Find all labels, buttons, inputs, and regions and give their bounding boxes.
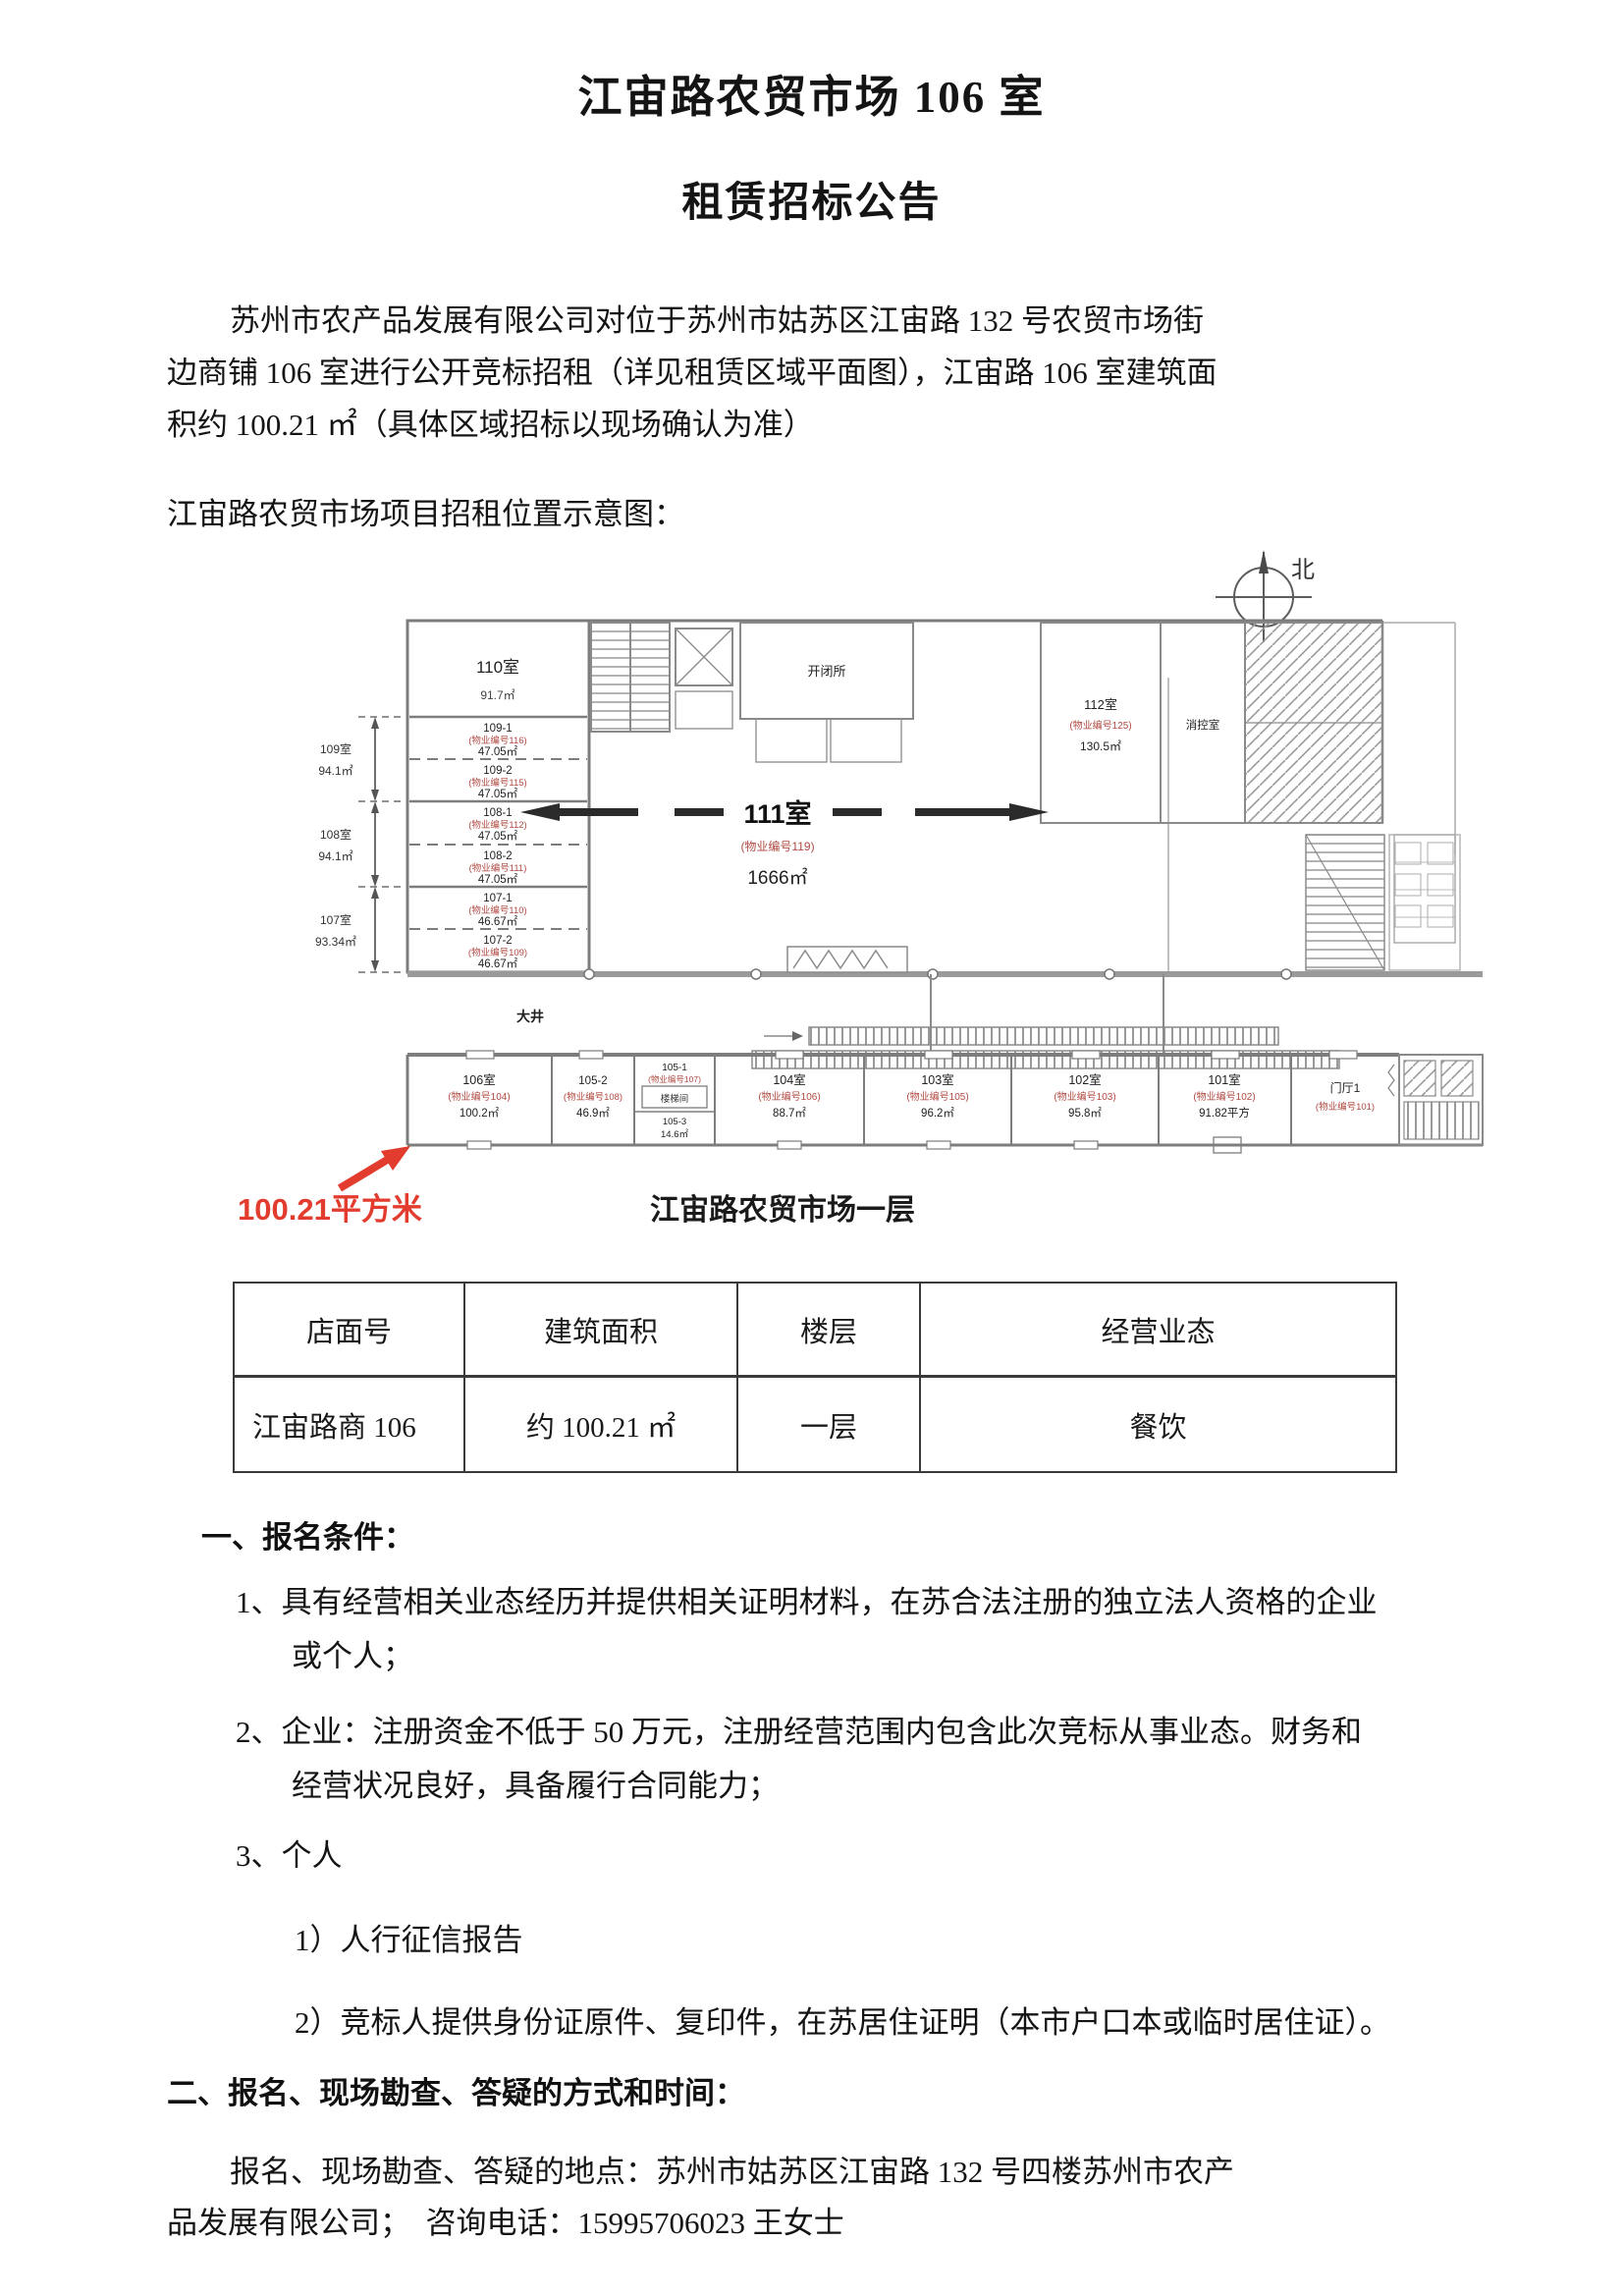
cell-area: 约 100.21 ㎡	[464, 1377, 737, 1473]
para-line: 报名、现场勘查、答疑的地点：苏州市姑苏区江宙路 132 号四楼苏州市农产	[167, 2147, 1473, 2198]
room-code: (物业编号105)	[906, 1090, 968, 1103]
intro-line: 边商铺 106 室进行公开竞标招租（详见租赁区域平面图），江宙路 106 室建筑…	[167, 347, 1473, 399]
room-code: (物业编号106)	[758, 1090, 820, 1103]
room-label: 105-1	[662, 1063, 687, 1073]
room-label: 109-2	[483, 765, 512, 777]
room-label: 103室	[921, 1072, 953, 1087]
item-line: 或个人；	[292, 1629, 1443, 1683]
table-row: 江宙路商 106 约 100.21 ㎡ 一层 餐饮	[234, 1377, 1396, 1473]
document-page: 江宙路农贸市场 106 室 租赁招标公告 苏州市农产品发展有限公司对位于苏州市姑…	[0, 0, 1623, 2296]
room-area: 100.2㎡	[460, 1107, 500, 1120]
room-code: (物业编号110)	[468, 904, 526, 916]
plan-caption: 江宙路农贸市场一层	[650, 1193, 915, 1227]
dim-room: 107室	[320, 912, 352, 927]
room-code: (物业编号107)	[648, 1074, 701, 1084]
cell-business-type: 餐饮	[920, 1377, 1396, 1473]
room-code: (物业编号125)	[1069, 719, 1131, 732]
highlight-arrow-icon	[340, 1146, 410, 1188]
left-dimensions	[358, 717, 406, 972]
room-label: 门厅1	[1330, 1080, 1361, 1095]
left-dimension-labels: 109室 94.1㎡ 108室 94.1㎡ 107室 93.34㎡	[315, 741, 356, 949]
room-code: (物业编号102)	[1193, 1090, 1255, 1103]
dim-area: 94.1㎡	[318, 849, 352, 863]
plan-intro-line: 江宙路农贸市场项目招租位置示意图：	[167, 489, 684, 533]
room-label: 106室	[462, 1072, 495, 1087]
room-area: 46.9㎡	[576, 1107, 610, 1120]
room-label: 108-1	[483, 807, 512, 819]
room-code: (物业编号101)	[1316, 1101, 1375, 1113]
north-label: 北	[1291, 557, 1315, 583]
section1-subitem-1: 1）人行征信报告	[295, 1913, 523, 1967]
cell-floor: 一层	[737, 1377, 920, 1473]
room-area: 130.5㎡	[1080, 739, 1121, 753]
room-code: (物业编号112)	[468, 819, 526, 831]
item-line: 2、企业：注册资金不低于 50 万元，注册经营范围内包含此次竞标从事业态。财务和	[236, 1705, 1443, 1759]
room-label: 105-2	[578, 1075, 607, 1087]
room-label: 109-1	[483, 723, 512, 735]
intro-paragraph: 苏州市农产品发展有限公司对位于苏州市姑苏区江宙路 132 号农贸市场街 边商铺 …	[167, 295, 1473, 451]
section1-subitem-2: 2）竞标人提供身份证原件、复印件，在苏居住证明（本市户口本或临时居住证）。	[295, 1995, 1390, 2050]
room-label: 110室	[476, 658, 519, 677]
room-area: 95.8㎡	[1068, 1107, 1102, 1120]
item-line: 1、具有经营相关业态经历并提供相关证明材料，在苏合法注册的独立法人资格的企业	[236, 1575, 1443, 1629]
room-code: (物业编号108)	[564, 1091, 622, 1103]
section1-item-3: 3、个人	[236, 1829, 343, 1883]
room-area: 47.05㎡	[478, 745, 518, 758]
room-label: 108-2	[483, 850, 512, 862]
item-line: 经营状况良好，具备履行合同能力；	[292, 1759, 1443, 1813]
table-header-row: 店面号 建筑面积 楼层 经营业态	[234, 1283, 1396, 1377]
section2-paragraph: 报名、现场勘查、答疑的地点：苏州市姑苏区江宙路 132 号四楼苏州市农产 品发展…	[167, 2147, 1473, 2249]
room-area: 47.05㎡	[478, 830, 518, 843]
room-code: (物业编号109)	[468, 947, 527, 958]
room-area: 47.05㎡	[478, 788, 518, 800]
section1-item-2: 2、企业：注册资金不低于 50 万元，注册经营范围内包含此次竞标从事业态。财务和…	[236, 1705, 1443, 1813]
room-area: 91.7㎡	[480, 688, 514, 702]
col-header-shop-no: 店面号	[234, 1283, 464, 1377]
dim-room: 108室	[320, 827, 352, 842]
section1-item-1: 1、具有经营相关业态经历并提供相关证明材料，在苏合法注册的独立法人资格的企业 或…	[236, 1575, 1443, 1683]
room-area: 14.6㎡	[661, 1129, 688, 1140]
room-area: 46.67㎡	[478, 957, 518, 970]
hall-111: 111室 (物业编号119) 1666㎡	[520, 798, 1049, 889]
dim-room: 109室	[320, 741, 352, 756]
room-label: 111室	[743, 798, 811, 829]
dim-area: 94.1㎡	[318, 764, 352, 778]
room-label: 104室	[773, 1072, 805, 1087]
shop-info-table: 店面号 建筑面积 楼层 经营业态 江宙路商 106 约 100.21 ㎡ 一层 …	[233, 1282, 1397, 1473]
room-label: 107-2	[483, 935, 512, 947]
room-area: 91.82平方	[1199, 1106, 1250, 1120]
left-wing-labels: 110室 91.7㎡ 109-1 (物业编号116) 47.05㎡ 109-2 …	[468, 658, 527, 970]
room-label: 105-3	[663, 1117, 686, 1127]
floor-plan: 北 110室 91.7㎡ 109-1	[226, 530, 1492, 1230]
room-label: 101室	[1208, 1072, 1240, 1087]
col-header-area: 建筑面积	[464, 1283, 737, 1377]
room-label: 消控室	[1186, 718, 1220, 732]
col-header-floor: 楼层	[737, 1283, 920, 1377]
room-label: 112室	[1084, 697, 1117, 712]
room-label: 开闭所	[807, 664, 845, 679]
highlight-area-label: 100.21平方米	[238, 1192, 422, 1227]
room-code: (物业编号115)	[468, 777, 526, 789]
para-line: 品发展有限公司； 咨询电话：15995706023 王女士	[167, 2198, 1473, 2249]
top-rooms	[591, 623, 1382, 823]
section2-title: 二、报名、现场勘查、答疑的方式和时间：	[167, 2068, 745, 2112]
room-code: (物业编号111)	[469, 862, 527, 874]
room-label: 107-1	[483, 893, 512, 904]
dim-area: 93.34㎡	[315, 935, 356, 949]
intro-line: 苏州市农产品发展有限公司对位于苏州市姑苏区江宙路 132 号农贸市场街	[167, 295, 1473, 347]
cell-shop-no: 江宙路商 106	[234, 1377, 464, 1473]
doc-title-line1: 江宙路农贸市场 106 室	[0, 61, 1623, 125]
room-code: (物业编号103)	[1054, 1090, 1115, 1103]
room-code: (物业编号116)	[468, 735, 526, 746]
courtyard-label: 大井	[516, 1009, 544, 1024]
stair-label: 楼梯间	[661, 1093, 689, 1105]
room-code: (物业编号104)	[448, 1090, 510, 1103]
room-area: 96.2㎡	[921, 1107, 954, 1120]
section1-title: 一、报名条件：	[201, 1512, 414, 1557]
room-code: (物业编号119)	[740, 839, 814, 853]
room-label: 102室	[1068, 1072, 1101, 1087]
intro-line: 积约 100.21 ㎡（具体区域招标以现场确认为准）	[167, 399, 1473, 451]
room-area: 1666㎡	[747, 866, 807, 889]
room-area: 46.67㎡	[478, 915, 518, 928]
doc-title-line2: 租赁招标公告	[0, 169, 1623, 229]
col-header-business-type: 经营业态	[920, 1283, 1396, 1377]
shop-labels: 106室 (物业编号104) 100.2㎡ 105-2 (物业编号108) 46…	[448, 1063, 1375, 1140]
room-area: 88.7㎡	[773, 1107, 806, 1120]
room-area: 47.05㎡	[478, 873, 518, 886]
